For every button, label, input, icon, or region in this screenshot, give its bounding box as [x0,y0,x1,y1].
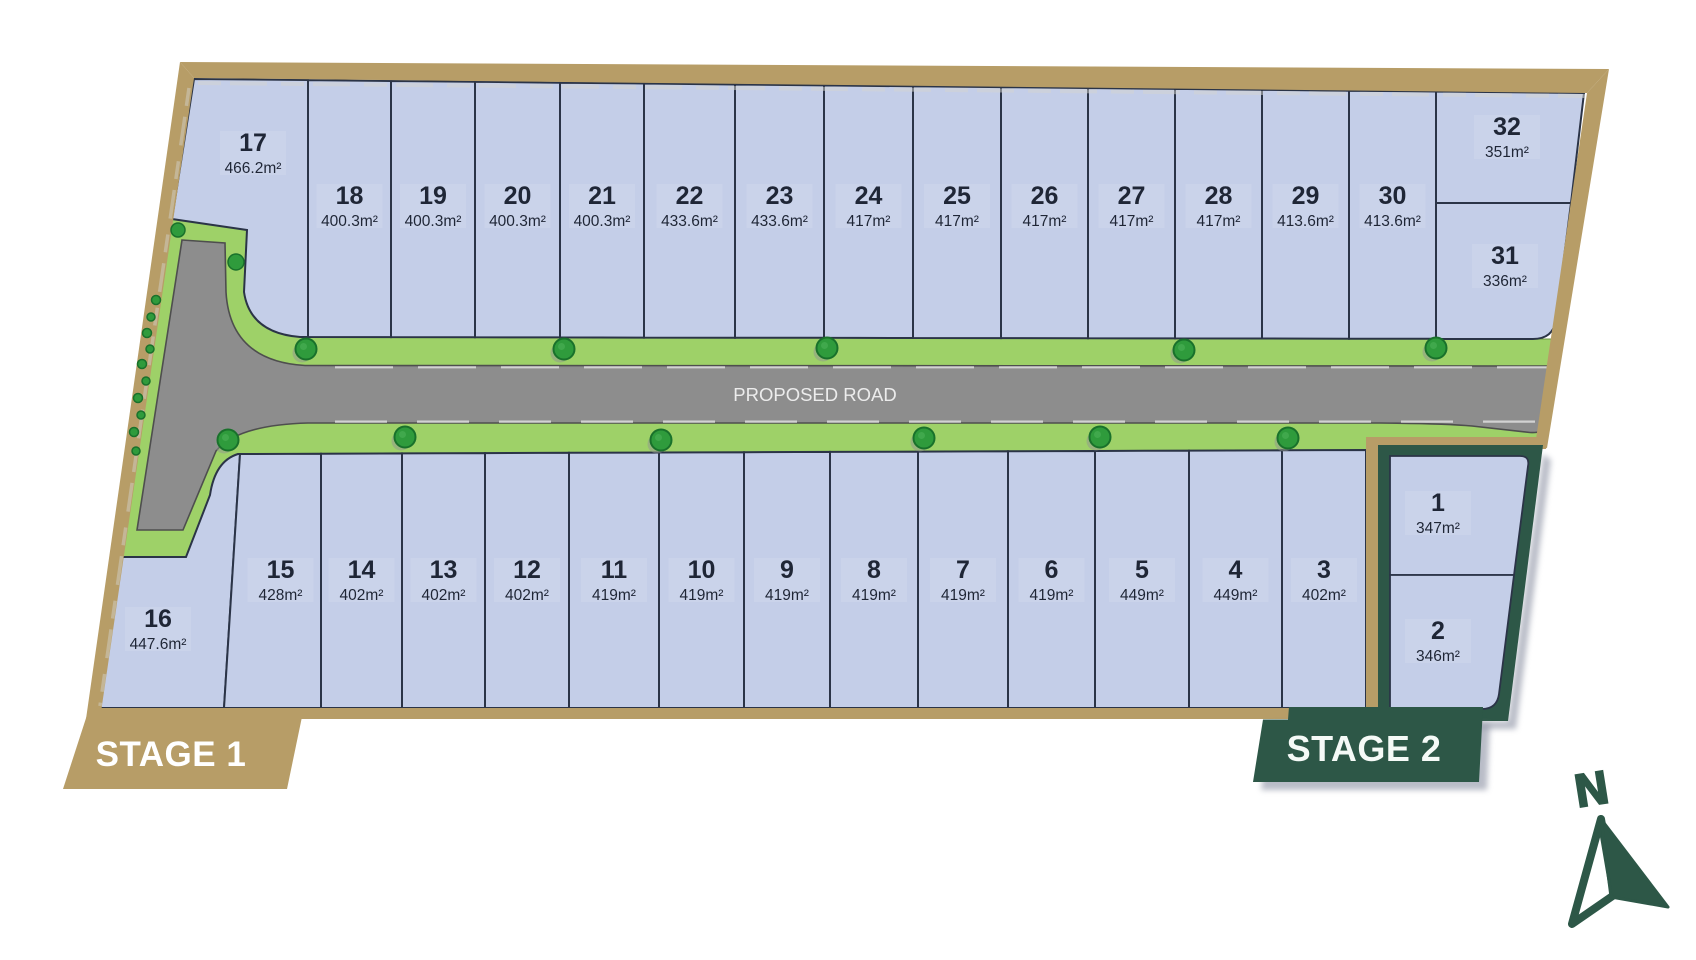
svg-text:400.3m²: 400.3m² [405,213,462,230]
svg-text:5: 5 [1135,556,1149,584]
svg-text:6: 6 [1045,556,1059,584]
svg-text:9: 9 [780,556,794,584]
svg-text:449m²: 449m² [1120,587,1164,604]
svg-text:351m²: 351m² [1485,144,1529,161]
svg-text:419m²: 419m² [680,587,724,604]
svg-text:PROPOSED ROAD: PROPOSED ROAD [733,384,896,405]
svg-text:417m²: 417m² [935,213,979,230]
svg-text:28: 28 [1205,182,1233,210]
svg-text:417m²: 417m² [1197,213,1241,230]
svg-text:11: 11 [601,556,628,584]
svg-text:417m²: 417m² [1110,213,1154,230]
svg-text:STAGE 1: STAGE 1 [96,735,247,774]
svg-text:400.3m²: 400.3m² [321,213,378,230]
svg-text:30: 30 [1379,182,1407,210]
svg-text:STAGE 2: STAGE 2 [1287,728,1442,769]
svg-text:32: 32 [1493,113,1521,141]
svg-text:3: 3 [1317,556,1331,584]
svg-text:336m²: 336m² [1483,273,1527,290]
svg-text:24: 24 [855,182,883,210]
svg-text:1: 1 [1431,489,1445,517]
svg-text:10: 10 [688,556,716,584]
svg-text:466.2m²: 466.2m² [225,160,282,177]
svg-text:402m²: 402m² [340,587,384,604]
svg-text:8: 8 [867,556,881,584]
svg-text:4: 4 [1229,556,1243,584]
svg-text:347m²: 347m² [1416,520,1460,537]
svg-text:15: 15 [267,556,295,584]
svg-text:402m²: 402m² [422,587,466,604]
svg-text:419m²: 419m² [765,587,809,604]
svg-text:25: 25 [943,182,971,210]
svg-text:417m²: 417m² [1023,213,1067,230]
svg-text:428m²: 428m² [259,587,303,604]
svg-text:419m²: 419m² [941,587,985,604]
svg-text:29: 29 [1292,182,1320,210]
svg-text:23: 23 [766,182,794,210]
svg-text:12: 12 [513,556,541,584]
svg-text:449m²: 449m² [1214,587,1258,604]
svg-text:433.6m²: 433.6m² [751,213,808,230]
svg-text:419m²: 419m² [592,587,636,604]
svg-text:419m²: 419m² [1030,587,1074,604]
svg-text:402m²: 402m² [1302,587,1346,604]
svg-text:346m²: 346m² [1416,648,1460,665]
svg-text:17: 17 [239,129,267,157]
svg-text:447.6m²: 447.6m² [130,636,187,653]
svg-text:400.3m²: 400.3m² [489,213,546,230]
svg-text:400.3m²: 400.3m² [574,213,631,230]
svg-text:413.6m²: 413.6m² [1364,213,1421,230]
svg-text:18: 18 [336,182,364,210]
svg-text:20: 20 [504,182,532,210]
svg-text:22: 22 [676,182,704,210]
svg-text:14: 14 [348,556,376,584]
svg-text:26: 26 [1031,182,1059,210]
svg-text:433.6m²: 433.6m² [661,213,718,230]
svg-text:13: 13 [430,556,458,584]
svg-text:27: 27 [1118,182,1146,210]
svg-text:19: 19 [419,182,447,210]
svg-text:419m²: 419m² [852,587,896,604]
svg-text:413.6m²: 413.6m² [1277,213,1334,230]
svg-text:2: 2 [1431,617,1445,645]
svg-text:31: 31 [1491,242,1519,270]
svg-text:16: 16 [144,605,172,633]
svg-text:7: 7 [956,556,970,584]
svg-text:402m²: 402m² [505,587,549,604]
svg-text:21: 21 [588,182,616,210]
svg-text:417m²: 417m² [847,213,891,230]
